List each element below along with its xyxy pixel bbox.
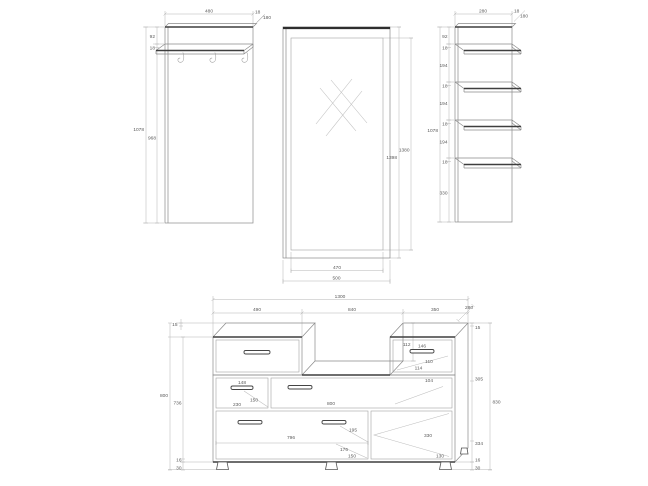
handle-big-drawer-right [322, 421, 346, 425]
dim-rcol-3: 16 [475, 458, 481, 464]
cabinet-dim-lines [168, 296, 492, 470]
mirror-glass [291, 38, 383, 250]
dim-cab-height-inner: 736 [173, 401, 181, 407]
mirror-panel [283, 27, 390, 258]
cabinet-top-faces [213, 323, 468, 337]
dim-sd-a: 150 [250, 398, 258, 404]
dim-rcol-2: 334 [475, 441, 483, 447]
door-front [371, 411, 452, 459]
dim-cab-riser: 112 [403, 342, 411, 348]
dim-cab-left: 490 [253, 307, 261, 313]
dim-cab-total: 1300 [335, 294, 346, 300]
dim-wd-width: 800 [327, 401, 335, 407]
dim-unit-col-8: 330 [439, 191, 447, 197]
leg [217, 462, 229, 470]
dim-coatrack-width: 480 [205, 9, 213, 15]
dim-cab-topboard: 15 [172, 322, 178, 328]
dim-cab-topbox: 350 [431, 307, 439, 313]
dim-bd-a: 195 [349, 428, 357, 434]
dim-mirror-glass-width: 470 [333, 265, 341, 271]
dim-coatrack-shelfboard: 18 [150, 46, 156, 52]
dim-coatrack-height: 1078 [133, 127, 144, 133]
left-box-drawer-front [216, 340, 299, 372]
coat-rack-panel [156, 24, 257, 224]
dim-unit-col-4: 194 [439, 101, 447, 107]
leg [326, 462, 338, 470]
handle-left-box-drawer [244, 351, 270, 355]
cabinet-drawing: 1300 490 840 350 280 15 112 146 110 114 … [160, 294, 501, 472]
dim-rb-b: 114 [415, 366, 423, 372]
cabinet-recess [302, 323, 403, 375]
dim-unit-col-6: 194 [439, 140, 447, 146]
shelf-1 [455, 44, 521, 54]
dim-cab-right: 840 [348, 307, 356, 313]
dim-unit-col-1: 18 [442, 46, 448, 52]
dim-coatrack-lower: 968 [148, 136, 156, 142]
coat-rack-dim-lines [143, 11, 265, 223]
dim-unit-height: 1078 [427, 128, 438, 134]
dim-bd-b: 176 [340, 447, 348, 453]
shelf-unit-drawing: 280 18 180 1078 92 18 194 18 194 18 194 … [427, 9, 528, 223]
dim-mirror-width: 500 [332, 276, 340, 282]
cabinet-right-side [455, 323, 468, 462]
mirror-glass-hatch [316, 79, 367, 136]
mirror-drawing: 1398 1380 470 500 [283, 27, 413, 284]
dim-door-b: 130 [436, 454, 444, 460]
dim-rb-a: 110 [425, 359, 433, 365]
cabinet-carcass [213, 323, 468, 462]
dim-unit-width: 280 [479, 9, 487, 15]
dim-cab-height-right: 830 [493, 400, 501, 406]
leg-back [461, 448, 469, 454]
coat-rack-drawing: 480 18 180 1078 92 18 968 [133, 9, 271, 224]
dim-sd-b: 230 [233, 402, 241, 408]
handle-right-box-drawer [410, 350, 434, 354]
dim-cab-height-left: 800 [160, 393, 168, 399]
shelf-2 [455, 82, 521, 92]
dim-unit-col-3: 18 [442, 84, 448, 90]
shelf-front-edges [455, 27, 521, 165]
dim-rcol-4: 30 [475, 466, 481, 472]
shelf-unit-panel [455, 24, 521, 223]
dim-coatrack-depth: 180 [263, 15, 271, 21]
coat-rack-shelf [156, 44, 253, 54]
shelf-4 [455, 158, 521, 168]
dim-bd-c: 150 [348, 454, 356, 460]
handle-big-drawer-left [238, 421, 262, 425]
dim-coatrack-board: 18 [255, 10, 261, 16]
dim-mirror-glass-height: 1380 [399, 148, 410, 154]
handle-wide-drawer [288, 386, 312, 390]
dim-unit-depth: 180 [520, 14, 528, 20]
dim-sd-handle: 148 [238, 380, 246, 386]
furniture-dimension-drawing: 480 18 180 1078 92 18 968 1398 1380 470 … [0, 0, 648, 486]
dim-unit-col-0: 92 [442, 34, 448, 40]
dim-unit-board: 18 [514, 9, 520, 15]
technical-drawing-page: 480 18 180 1078 92 18 968 1398 1380 470 … [0, 0, 648, 486]
dim-coatrack-topgap: 92 [150, 34, 156, 40]
dim-cab-leg: 30 [176, 466, 182, 472]
dim-rb-c: 104 [425, 378, 433, 384]
dim-door-width: 330 [424, 433, 432, 439]
cabinet-left-box [213, 337, 302, 375]
dim-rcol-1: 305 [475, 377, 483, 383]
leg [440, 462, 452, 470]
handle-small-drawer [231, 386, 253, 390]
dim-rcol-0: 15 [475, 325, 481, 331]
dim-bd-width: 796 [287, 435, 295, 441]
dim-rb-handle: 146 [418, 344, 426, 350]
dim-mirror-height: 1398 [386, 155, 397, 161]
dim-cab-depth: 280 [465, 305, 473, 311]
dim-cab-base: 16 [176, 458, 182, 464]
dim-unit-col-7: 18 [442, 160, 448, 166]
dim-unit-col-2: 194 [439, 63, 447, 69]
dim-unit-col-5: 18 [442, 122, 448, 128]
shelf-3 [455, 120, 521, 130]
